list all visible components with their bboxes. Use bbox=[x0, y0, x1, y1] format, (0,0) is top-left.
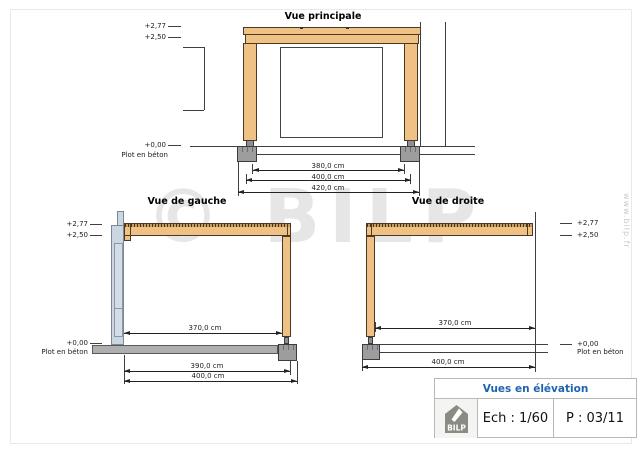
board-gap bbox=[300, 27, 303, 29]
height-bracket bbox=[204, 47, 205, 110]
droite-foot bbox=[368, 337, 373, 344]
view-principale-title: Vue principale bbox=[273, 11, 373, 22]
gauche-wall-panel bbox=[114, 243, 123, 337]
reference-line bbox=[535, 212, 536, 372]
principale-plot-left bbox=[237, 146, 257, 162]
droite-decking-hatch bbox=[367, 224, 532, 227]
reference-line bbox=[420, 22, 421, 146]
height-bracket-top bbox=[183, 47, 204, 48]
level-tick bbox=[168, 145, 181, 146]
reference-line bbox=[445, 22, 446, 146]
ground-line bbox=[190, 146, 475, 147]
level-label-277: +2,77 bbox=[128, 22, 166, 30]
level-tick bbox=[90, 343, 102, 344]
height-bracket-bottom bbox=[183, 110, 204, 111]
level-tick bbox=[168, 37, 181, 38]
drawing-sheet: © BILP www.bilp.fr Vue principale +2,77 … bbox=[0, 0, 640, 452]
beam-joint bbox=[371, 224, 372, 235]
dim-380-line bbox=[253, 170, 404, 171]
dim-400-line bbox=[246, 180, 411, 181]
dim-370-label: 370,0 cm bbox=[405, 319, 505, 327]
ext-line bbox=[404, 164, 405, 174]
dim-420-line bbox=[238, 192, 419, 193]
scale-cell: Ech : 1/60 bbox=[478, 399, 554, 438]
beam-joint bbox=[287, 224, 288, 235]
level-label-250: +2,50 bbox=[577, 231, 598, 239]
title-block: Vues en élévation BILP Ech : 1/60 P : 03… bbox=[434, 378, 637, 438]
level-label-277: +2,77 bbox=[577, 219, 598, 227]
level-label-250: +2,50 bbox=[128, 33, 166, 41]
dim-400-label: 400,0 cm bbox=[398, 358, 498, 366]
dim-370-label: 370,0 cm bbox=[155, 324, 255, 332]
level-tick bbox=[90, 224, 102, 225]
beam-joint bbox=[527, 224, 528, 235]
gauche-post bbox=[282, 236, 291, 337]
bilp-logo-icon: BILP bbox=[445, 405, 468, 433]
dim-380-label: 380,0 cm bbox=[278, 162, 378, 170]
level-label-0: +0,00 bbox=[128, 141, 166, 149]
principale-beam bbox=[245, 34, 419, 44]
level-label-250: +2,50 bbox=[50, 231, 88, 239]
dim-420-label: 420,0 cm bbox=[278, 184, 378, 192]
gauche-foot bbox=[284, 337, 289, 344]
dim-370-line bbox=[124, 333, 282, 334]
level-tick bbox=[560, 223, 572, 224]
dim-390-label: 390,0 cm bbox=[157, 362, 257, 370]
ground-line-2 bbox=[380, 352, 548, 353]
board-gap bbox=[346, 27, 349, 29]
level-tick bbox=[90, 235, 102, 236]
page-cell: P : 03/11 bbox=[554, 399, 636, 438]
beam-joint bbox=[130, 224, 131, 235]
ground-line-2 bbox=[257, 154, 475, 155]
gauche-plot bbox=[278, 344, 297, 361]
ext-line bbox=[290, 361, 291, 375]
plot-label: Plot en béton bbox=[577, 348, 624, 356]
principale-post-left bbox=[243, 43, 257, 141]
droite-plot bbox=[362, 344, 380, 360]
level-tick bbox=[560, 344, 572, 345]
view-droite-title: Vue de droite bbox=[398, 196, 498, 207]
level-label-277: +2,77 bbox=[50, 220, 88, 228]
gauche-wall-bracket bbox=[124, 235, 131, 241]
level-tick bbox=[560, 235, 572, 236]
principale-plot-right bbox=[400, 146, 420, 162]
principale-wall-opening bbox=[280, 47, 383, 138]
logo-text: BILP bbox=[447, 423, 466, 432]
dim-370-line bbox=[375, 328, 535, 329]
plot-label: Plot en béton bbox=[30, 348, 88, 356]
dim-400-line bbox=[124, 381, 297, 382]
dim-400-label: 400,0 cm bbox=[158, 372, 258, 380]
gauche-decking-hatch bbox=[125, 224, 290, 227]
ground-line bbox=[380, 344, 548, 345]
gauche-wall-joint bbox=[114, 308, 123, 309]
ext-line bbox=[419, 162, 420, 196]
plot-label: Plot en béton bbox=[108, 151, 168, 159]
title-block-heading: Vues en élévation bbox=[435, 379, 636, 399]
principale-post-right bbox=[404, 43, 418, 141]
level-tick bbox=[168, 26, 181, 27]
dim-400-line bbox=[362, 367, 535, 368]
ext-line bbox=[282, 327, 283, 337]
droite-post bbox=[366, 236, 375, 337]
gauche-slab bbox=[92, 345, 278, 354]
view-gauche-title: Vue de gauche bbox=[137, 196, 237, 207]
logo-cell: BILP bbox=[435, 399, 478, 438]
gauche-wall-top bbox=[117, 211, 124, 226]
ext-line bbox=[297, 361, 298, 384]
level-label-0: +0,00 bbox=[50, 339, 88, 347]
level-label-0: +0,00 bbox=[577, 340, 598, 348]
